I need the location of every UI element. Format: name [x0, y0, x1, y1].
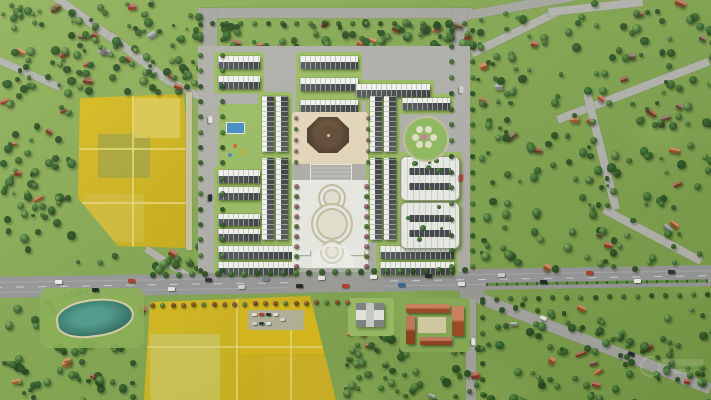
townhouse-row — [370, 96, 382, 152]
diagonal-road-tree — [550, 314, 555, 319]
townhouse-row — [384, 96, 396, 152]
townhouse-row — [384, 158, 396, 240]
boulevard-north-tree — [150, 272, 156, 278]
neighborhood-park — [218, 104, 260, 168]
tree — [27, 75, 32, 80]
village-house — [619, 76, 627, 83]
temple-west-tree — [294, 127, 298, 131]
tree — [172, 75, 177, 80]
tree — [436, 168, 441, 173]
boulevard-south-east-tree — [578, 295, 583, 300]
plaza-east-tree — [364, 244, 369, 249]
townhouse-row — [402, 98, 450, 110]
temple-east-tree — [366, 160, 370, 164]
tree — [502, 225, 507, 230]
right-avenue-west-tree — [449, 91, 454, 96]
left-avenue-west-tree — [198, 268, 203, 273]
tree — [547, 344, 553, 350]
tree — [630, 218, 636, 224]
tree — [346, 357, 351, 362]
plaza-east-tree — [364, 234, 369, 239]
tree — [666, 352, 672, 358]
tree — [559, 72, 564, 77]
top-road-tree — [420, 21, 425, 26]
tree — [313, 31, 319, 37]
diagonal-road-tree — [580, 325, 585, 330]
boulevard-south-east-tree — [649, 293, 654, 298]
tree — [150, 73, 155, 78]
right-avenue-west-tree — [449, 28, 454, 33]
tree — [97, 4, 104, 11]
tree — [660, 336, 667, 343]
tree — [32, 204, 38, 210]
boulevard-north-tree — [345, 269, 351, 275]
tree — [495, 324, 501, 330]
plaza-west-tree — [294, 184, 299, 189]
townhouse-roof-band — [218, 252, 296, 259]
tree — [498, 126, 502, 130]
tree — [23, 64, 28, 69]
tree — [374, 348, 378, 352]
tree — [377, 38, 383, 44]
tree — [602, 339, 610, 347]
village-house — [672, 181, 681, 189]
boulevard-south-flower-tree — [242, 302, 247, 307]
tree — [518, 179, 522, 183]
car — [398, 283, 405, 287]
tree — [45, 74, 51, 80]
tree — [349, 31, 356, 38]
tree — [56, 201, 61, 206]
tree — [519, 15, 528, 24]
tree — [697, 379, 704, 386]
townhouse-roof-band — [389, 96, 396, 152]
boulevard-south-east-tree — [564, 295, 569, 300]
tree — [77, 84, 83, 90]
townhouse-roof-band — [300, 62, 358, 69]
tree — [566, 159, 572, 165]
tree — [109, 74, 116, 81]
tree — [92, 37, 98, 43]
tree — [389, 368, 395, 374]
tree — [279, 38, 286, 45]
top-road-tree — [210, 21, 215, 26]
townhouse-roof-band — [380, 252, 454, 259]
tree — [669, 122, 677, 130]
left-avenue-west-tree — [198, 99, 203, 104]
car — [128, 279, 135, 283]
plaza-east-tree — [364, 194, 369, 199]
tree — [611, 264, 616, 269]
tree — [130, 360, 136, 366]
tree — [550, 162, 556, 168]
tree — [86, 379, 90, 383]
flower-petal — [416, 126, 423, 133]
tree — [50, 60, 55, 65]
right-avenue-west-tree — [449, 217, 454, 222]
boulevard-south-east-tree — [607, 294, 612, 299]
tree — [694, 183, 701, 190]
diagonal-road-tree — [625, 343, 630, 348]
car — [209, 194, 213, 201]
tree — [628, 359, 635, 366]
tree — [291, 37, 298, 44]
tree — [67, 231, 76, 240]
tree — [175, 56, 182, 63]
townhouse-roof-band — [375, 158, 382, 240]
townhouse-row — [300, 78, 358, 91]
tree — [622, 54, 630, 62]
boulevard-south-east-tree — [536, 296, 541, 301]
top-road-tree — [294, 21, 299, 26]
village-house — [591, 381, 599, 388]
south-road-tree — [480, 315, 485, 320]
tree — [0, 160, 7, 167]
tree — [348, 381, 356, 389]
left-avenue-west-tree — [198, 176, 203, 181]
left-avenue-east-tree — [220, 99, 225, 104]
townhouse-roof-band — [300, 105, 358, 112]
playground-equipment — [228, 153, 232, 157]
right-avenue-east-tree — [470, 170, 475, 175]
aerial-masterplan-render — [0, 0, 711, 400]
tree — [503, 11, 508, 16]
tree — [530, 371, 534, 375]
tree — [77, 43, 83, 49]
tree — [643, 192, 651, 200]
tree — [4, 216, 11, 223]
tree — [25, 58, 30, 63]
plaza-west-tree — [294, 264, 299, 269]
tree — [79, 348, 85, 354]
townhouse-row — [262, 96, 274, 152]
boulevard-south-east-tree — [550, 295, 555, 300]
boulevard-south-flower-tree — [232, 302, 237, 307]
tree — [601, 70, 609, 78]
boulevard-north-tree — [163, 272, 169, 278]
boulevard-north-tree — [423, 268, 429, 274]
right-avenue-east-tree — [470, 28, 475, 33]
tree — [583, 382, 590, 389]
tree — [474, 382, 480, 388]
tree — [599, 185, 604, 190]
parked-car — [259, 322, 264, 325]
tree — [585, 176, 593, 184]
townhouse-row — [370, 158, 382, 240]
tree — [562, 311, 567, 316]
tree — [21, 210, 29, 218]
tree — [92, 23, 98, 29]
village-house — [82, 77, 93, 85]
top-road-tree — [462, 21, 467, 26]
tree — [16, 93, 22, 99]
tree — [112, 37, 120, 45]
diagonal-road-tree — [595, 331, 600, 336]
car — [668, 270, 675, 274]
tree — [508, 54, 516, 62]
tree — [12, 131, 19, 138]
courtyard-townhouse-block — [400, 202, 460, 249]
tree — [89, 18, 93, 22]
tree — [611, 237, 618, 244]
tree — [73, 51, 81, 59]
tree — [65, 195, 71, 201]
watermark-text-shape — [662, 359, 704, 366]
tree — [97, 260, 103, 266]
tree — [527, 144, 536, 153]
tree — [669, 348, 673, 352]
tree — [489, 198, 496, 205]
top-road-tree — [378, 21, 383, 26]
tree — [18, 365, 25, 372]
tree — [22, 391, 26, 395]
tree — [33, 323, 39, 329]
parked-car — [273, 313, 278, 316]
boulevard-south-flower-tree — [222, 302, 227, 307]
tree — [76, 260, 80, 264]
tree — [29, 138, 33, 142]
landmark-temple-finial — [327, 134, 330, 137]
tree — [75, 17, 83, 25]
flower-center — [421, 134, 427, 140]
boulevard-south-east-tree — [621, 294, 626, 299]
tree — [48, 206, 55, 213]
tree — [77, 70, 81, 74]
tree — [644, 202, 648, 206]
paddy-edge-road — [186, 92, 192, 250]
parked-car — [266, 322, 271, 325]
tree — [645, 107, 649, 111]
boulevard-south-flower-tree — [212, 302, 217, 307]
village-house — [548, 356, 557, 365]
tree — [130, 381, 135, 386]
village-house — [684, 379, 691, 384]
tree — [594, 166, 602, 174]
tree — [39, 203, 46, 210]
tree — [624, 233, 629, 238]
tree — [130, 394, 136, 400]
tree — [24, 193, 32, 201]
tree — [6, 101, 13, 108]
tree — [677, 160, 686, 169]
boulevard-north-tree — [397, 268, 403, 274]
car — [92, 288, 99, 292]
tree — [616, 47, 623, 54]
tree — [592, 348, 598, 354]
tree — [110, 379, 115, 384]
top-road-tree — [392, 21, 397, 26]
right-avenue-west-tree — [449, 154, 454, 159]
boulevard-south-flower-tree — [335, 300, 340, 305]
tree — [395, 389, 399, 393]
tree — [83, 49, 87, 53]
left-avenue-east-tree — [220, 207, 225, 212]
tree — [706, 26, 711, 34]
tree — [508, 101, 513, 106]
tree — [664, 230, 673, 239]
tree — [429, 187, 433, 191]
tree — [57, 62, 63, 68]
tree — [418, 32, 422, 36]
right-avenue-east-tree — [470, 122, 475, 127]
tree — [57, 83, 61, 87]
tree — [613, 172, 618, 177]
tree — [551, 132, 558, 139]
tree — [687, 142, 694, 149]
tree — [355, 351, 362, 358]
tree — [404, 32, 412, 40]
diagonal-road-tree — [610, 337, 615, 342]
temple-west-tree — [294, 116, 298, 120]
tree — [67, 77, 75, 85]
school-building — [406, 304, 450, 313]
tree — [71, 348, 79, 356]
paddy-dike-line — [132, 90, 134, 250]
tree — [457, 373, 462, 378]
top-road-tree — [434, 21, 439, 26]
tree — [661, 90, 665, 94]
plaza-west-tree — [294, 214, 299, 219]
car — [318, 276, 325, 280]
tree — [411, 383, 419, 391]
school-building — [452, 306, 464, 336]
tree — [504, 27, 509, 32]
tree — [551, 99, 559, 107]
tree — [52, 164, 58, 170]
tree — [600, 320, 605, 325]
boulevard-north-tree — [358, 269, 364, 275]
tree — [102, 10, 109, 17]
tree — [594, 23, 599, 28]
townhouse-row — [262, 158, 274, 240]
boulevard-south-east-tree — [677, 293, 682, 298]
plaza-west-tree — [294, 254, 299, 259]
tree — [606, 100, 612, 106]
top-road-tree — [224, 21, 229, 26]
tree — [31, 12, 35, 16]
tree — [579, 194, 586, 201]
right-avenue-east-tree — [470, 107, 475, 112]
playground-equipment — [241, 150, 245, 154]
car — [472, 338, 476, 345]
tree — [9, 3, 15, 9]
tree — [504, 117, 510, 123]
plaza-west-tree — [294, 204, 299, 209]
boulevard-north-tree — [306, 270, 312, 276]
tree — [675, 343, 681, 349]
tree — [587, 153, 593, 159]
grass-patch — [619, 109, 696, 160]
courtyard-inner-row — [409, 230, 451, 237]
right-avenue-east-tree — [470, 91, 475, 96]
tree — [689, 76, 698, 85]
plaza-west-tree — [294, 194, 299, 199]
diagonal-road-tree — [520, 302, 525, 307]
tree — [587, 393, 594, 400]
townhouse-roof-band — [375, 96, 382, 152]
car — [262, 277, 269, 281]
south-road-tree — [480, 300, 485, 305]
tree — [699, 365, 705, 371]
tree — [142, 11, 148, 17]
tree — [119, 384, 127, 392]
tree — [578, 14, 585, 21]
tree — [30, 172, 35, 177]
playground-equipment — [233, 144, 237, 148]
tree — [677, 232, 681, 236]
tree — [620, 23, 627, 30]
right-avenue-west-tree — [449, 264, 454, 269]
tree — [509, 89, 516, 96]
tree — [664, 314, 672, 322]
tree — [659, 157, 663, 161]
tree — [514, 259, 521, 266]
tree — [640, 37, 649, 46]
tree — [504, 200, 511, 207]
top-road-tree — [266, 21, 271, 26]
plaza-circle-motif — [311, 203, 353, 245]
paddy-parcel — [134, 98, 180, 138]
left-avenue-west-tree — [198, 84, 203, 89]
tree — [514, 368, 522, 376]
tree — [676, 85, 683, 92]
car — [342, 284, 349, 288]
left-avenue-east-tree — [220, 130, 225, 135]
tree — [596, 395, 602, 400]
tree — [590, 137, 597, 144]
tree — [667, 49, 675, 57]
tree — [565, 133, 570, 138]
paddy-dike-line — [144, 346, 338, 348]
south-road-tree — [480, 346, 485, 351]
plaza-east-tree — [364, 254, 369, 259]
tree — [1, 12, 5, 16]
diagonal-road-tree — [535, 308, 540, 313]
tree — [133, 48, 138, 53]
tree — [378, 30, 384, 36]
tree — [358, 359, 365, 366]
car — [498, 273, 505, 277]
left-avenue-east-tree — [220, 145, 225, 150]
tree — [17, 202, 24, 209]
tree — [572, 376, 578, 382]
boulevard-south-east-tree — [508, 296, 513, 301]
plaza-east-tree — [364, 204, 369, 209]
tree — [660, 49, 665, 54]
tree — [68, 110, 72, 114]
south-road-tree — [480, 377, 485, 382]
left-avenue-west-tree — [198, 207, 203, 212]
tree — [64, 89, 71, 96]
tree — [95, 381, 99, 385]
temple-east-tree — [366, 116, 370, 120]
townhouse-row — [300, 56, 358, 69]
tree — [157, 29, 162, 34]
tree — [77, 377, 81, 381]
courtyard-townhouse-block — [400, 156, 460, 201]
left-avenue-west-tree — [198, 253, 203, 258]
paddy-dike-line — [236, 294, 238, 400]
townhouse-roof-band — [389, 158, 396, 240]
right-avenue-east-tree — [470, 233, 475, 238]
tree — [18, 5, 23, 10]
boulevard-north-tree — [228, 271, 234, 277]
village-house — [510, 322, 517, 326]
townhouse-row — [218, 246, 296, 259]
tree — [537, 236, 544, 243]
right-avenue-east-tree — [470, 264, 475, 269]
tree — [497, 77, 506, 86]
